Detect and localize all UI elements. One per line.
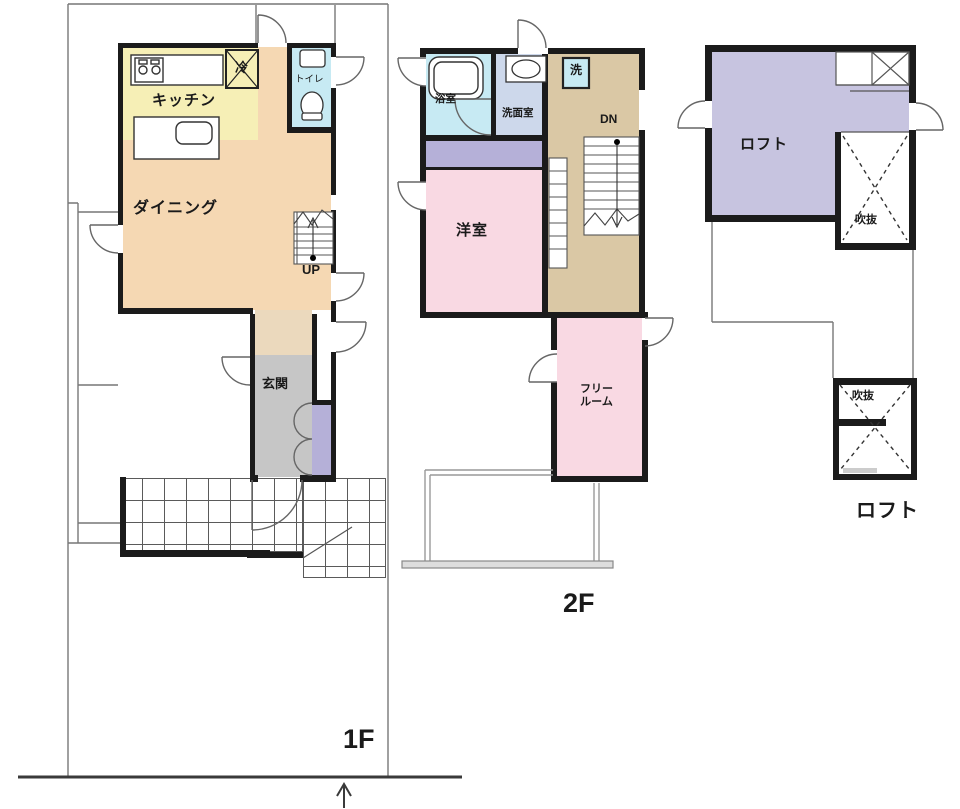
bath-label: 浴室: [435, 93, 456, 105]
floor-plan-canvas: キッチン 冷 トイレ ダイニング UP 玄関 1F 浴室 洗面室 洗 DN 洋室…: [0, 0, 960, 809]
entrance-label: 玄関: [262, 377, 288, 392]
washer-label: 洗: [570, 64, 582, 78]
loft-storage-box: [836, 52, 909, 91]
toilet-label: トイレ: [295, 75, 324, 86]
western-room-label: 洋室: [456, 222, 488, 239]
washstand: [506, 56, 546, 82]
kitchen-counter: [131, 55, 223, 85]
road-line: [18, 777, 462, 808]
stairs-down-label: DN: [600, 113, 617, 127]
floor1-label: 1F: [343, 724, 375, 755]
porch-edge-lines: [303, 527, 352, 558]
stairs-up-label: UP: [302, 263, 320, 278]
void-upper-label: 吹抜: [855, 214, 877, 227]
loft-room-label: ロフト: [740, 136, 788, 153]
floorplan-linework: [0, 0, 960, 809]
stairs-up-1f: [294, 210, 333, 264]
dining-label: ダイニング: [133, 200, 218, 218]
washroom-label: 洗面室: [502, 107, 534, 119]
void-lower-label: 吹抜: [852, 390, 874, 403]
kitchen-label: キッチン: [152, 92, 216, 109]
loft-caption: ロフト: [856, 500, 919, 523]
void-lower: [833, 378, 917, 480]
kitchen-island-sink: [134, 117, 219, 159]
floor2-label: 2F: [563, 588, 595, 619]
fridge-label: 冷: [235, 61, 248, 76]
free-room-label-line2: ルーム: [580, 396, 613, 408]
free-room-label-line1: フリー: [580, 383, 613, 395]
balcony-railing-2f: [402, 470, 613, 568]
free-room-label: フリー ルーム: [580, 383, 613, 408]
